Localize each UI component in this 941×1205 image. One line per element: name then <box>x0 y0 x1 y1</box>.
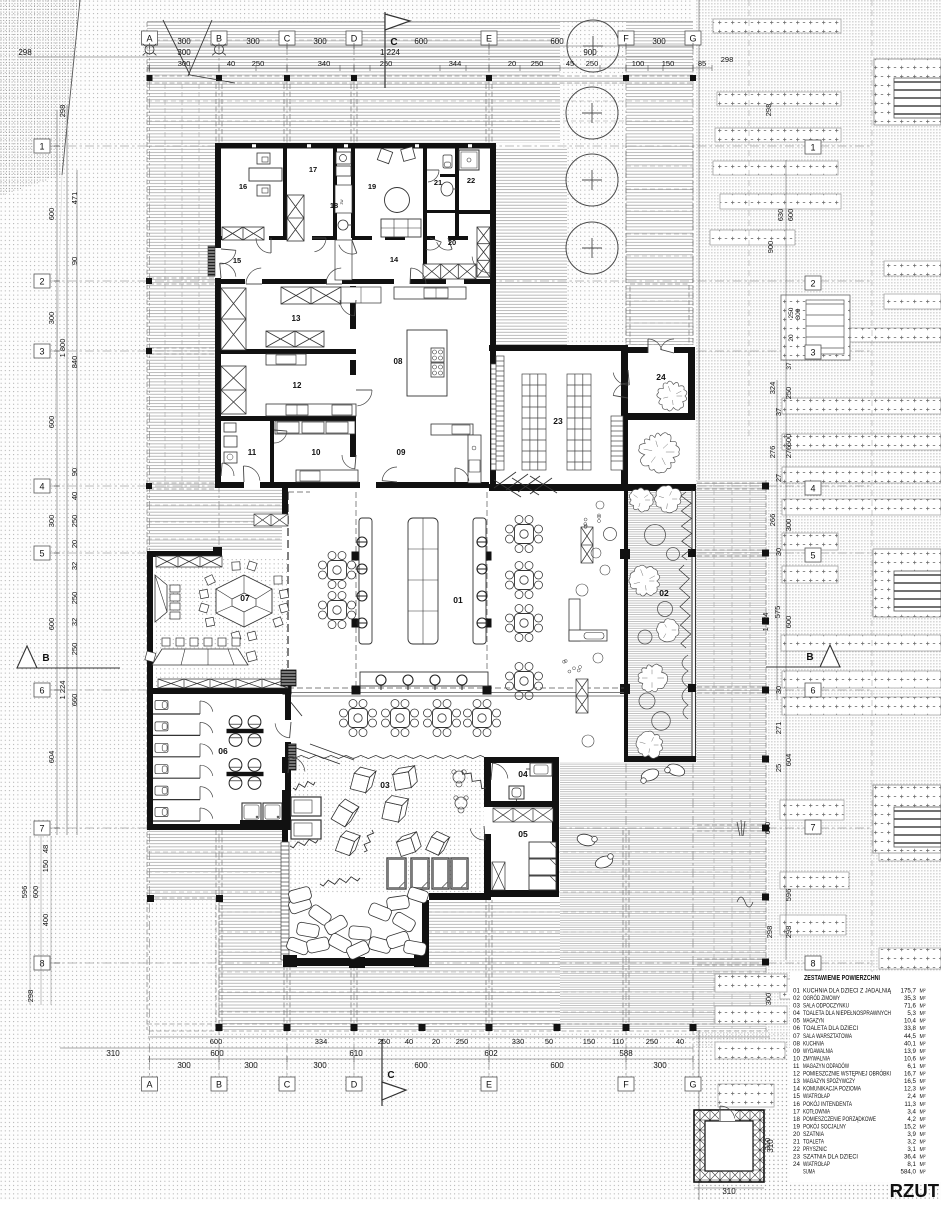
svg-text:M²: M² <box>920 1147 926 1153</box>
svg-text:ZESTAWIENIE POWIERZCHNI: ZESTAWIENIE POWIERZCHNI <box>804 973 880 982</box>
svg-text:06: 06 <box>793 1025 800 1032</box>
svg-text:WIATROŁAP: WIATROŁAP <box>803 1161 830 1168</box>
svg-text:40: 40 <box>676 1037 684 1046</box>
svg-text:09: 09 <box>793 1048 800 1055</box>
svg-text:10,6: 10,6 <box>904 1056 917 1063</box>
svg-text:B: B <box>216 1080 222 1090</box>
svg-text:600: 600 <box>550 1061 564 1070</box>
svg-text:596: 596 <box>20 886 29 899</box>
svg-text:15,2: 15,2 <box>904 1123 917 1130</box>
svg-text:35,3: 35,3 <box>904 995 917 1002</box>
svg-text:19: 19 <box>793 1123 800 1130</box>
svg-text:01: 01 <box>453 595 463 605</box>
svg-text:M²: M² <box>920 1162 926 1168</box>
svg-text:M²: M² <box>920 1026 926 1032</box>
svg-text:KUCHNIA DLA DZIECI Z JADALNIĄ: KUCHNIA DLA DZIECI Z JADALNIĄ <box>803 988 892 995</box>
svg-text:300: 300 <box>47 515 56 528</box>
svg-text:600: 600 <box>550 37 564 46</box>
svg-text:7: 7 <box>39 824 44 834</box>
svg-text:300: 300 <box>652 37 666 46</box>
svg-text:M²: M² <box>920 1041 926 1047</box>
svg-text:18: 18 <box>330 201 338 210</box>
svg-text:D: D <box>351 34 358 44</box>
svg-text:M²: M² <box>920 996 926 1002</box>
svg-text:M²: M² <box>920 1057 926 1063</box>
svg-text:03: 03 <box>793 1003 800 1010</box>
svg-text:M²: M² <box>920 1132 926 1138</box>
svg-text:10,4: 10,4 <box>904 1018 917 1025</box>
svg-text:19: 19 <box>368 182 376 191</box>
svg-text:900: 900 <box>583 48 597 57</box>
svg-text:1 224: 1 224 <box>58 681 67 700</box>
svg-text:300: 300 <box>47 312 56 325</box>
svg-text:11,3: 11,3 <box>904 1101 916 1108</box>
svg-text:3: 3 <box>810 348 815 358</box>
svg-text:SZATNIA: SZATNIA <box>803 1131 825 1138</box>
svg-text:22: 22 <box>793 1146 800 1153</box>
svg-text:300: 300 <box>178 59 191 68</box>
svg-text:KOTŁOWNIA: KOTŁOWNIA <box>803 1108 831 1115</box>
svg-text:250: 250 <box>456 1037 469 1046</box>
svg-text:600: 600 <box>47 208 56 221</box>
svg-text:M²: M² <box>920 1155 926 1161</box>
svg-text:8: 8 <box>39 959 44 969</box>
svg-text:6,1: 6,1 <box>907 1063 916 1070</box>
svg-text:33,8: 33,8 <box>904 1025 917 1032</box>
svg-text:310: 310 <box>766 1139 775 1153</box>
svg-text:ZW: ZW <box>340 200 344 205</box>
svg-text:300: 300 <box>177 37 191 46</box>
svg-text:25: 25 <box>774 764 783 772</box>
svg-text:14: 14 <box>793 1086 800 1093</box>
svg-text:10: 10 <box>312 448 321 457</box>
svg-text:298: 298 <box>764 104 773 117</box>
svg-text:27: 27 <box>774 474 783 482</box>
svg-text:E: E <box>486 1080 492 1090</box>
svg-text:M²: M² <box>920 1102 926 1108</box>
svg-text:18: 18 <box>793 1116 800 1123</box>
svg-text:250: 250 <box>378 1037 391 1046</box>
svg-text:02: 02 <box>793 995 800 1002</box>
svg-text:5: 5 <box>810 551 815 561</box>
svg-text:300: 300 <box>784 519 793 532</box>
svg-text:600: 600 <box>47 416 56 429</box>
svg-text:OGRÓD ZIMOWY: OGRÓD ZIMOWY <box>803 995 840 1002</box>
svg-text:32: 32 <box>70 562 79 570</box>
svg-text:22: 22 <box>467 176 475 185</box>
svg-text:37: 37 <box>774 408 783 416</box>
svg-text:02: 02 <box>659 588 669 598</box>
svg-text:C: C <box>390 37 397 48</box>
svg-text:D: D <box>351 1080 358 1090</box>
svg-text:A: A <box>146 1080 152 1090</box>
svg-text:11: 11 <box>793 1063 800 1070</box>
svg-text:C: C <box>387 1070 394 1081</box>
svg-text:310: 310 <box>106 1049 120 1058</box>
svg-text:298: 298 <box>58 105 67 118</box>
svg-text:20: 20 <box>70 540 79 548</box>
svg-text:KUCHNIA: KUCHNIA <box>803 1040 825 1047</box>
svg-text:SALA ODPOCZYNKU: SALA ODPOCZYNKU <box>803 1003 849 1010</box>
svg-text:B: B <box>42 653 49 664</box>
svg-text:ZMYWALNIA: ZMYWALNIA <box>803 1056 831 1063</box>
svg-text:40,1: 40,1 <box>904 1040 917 1047</box>
svg-text:13: 13 <box>292 314 301 323</box>
svg-text:24: 24 <box>656 372 666 382</box>
svg-text:100: 100 <box>632 59 645 68</box>
svg-text:250: 250 <box>531 59 544 68</box>
svg-text:20: 20 <box>793 1131 800 1138</box>
svg-text:21: 21 <box>434 178 442 187</box>
svg-text:600: 600 <box>786 209 795 222</box>
svg-text:POMIESZCZENIE PORZĄDKOWE: POMIESZCZENIE PORZĄDKOWE <box>803 1116 876 1123</box>
svg-text:17: 17 <box>309 165 317 174</box>
svg-text:SALA WARSZTATOWA: SALA WARSZTATOWA <box>803 1033 853 1040</box>
svg-text:150: 150 <box>583 1037 596 1046</box>
svg-text:300: 300 <box>764 993 773 1006</box>
svg-text:588: 588 <box>619 1049 633 1058</box>
svg-text:596: 596 <box>784 889 793 902</box>
svg-text:4: 4 <box>810 484 815 494</box>
svg-text:6: 6 <box>810 686 815 696</box>
svg-text:M²: M² <box>920 1011 926 1017</box>
svg-text:900: 900 <box>766 241 775 254</box>
svg-text:250: 250 <box>70 643 79 656</box>
svg-text:276: 276 <box>784 446 793 459</box>
svg-text:B: B <box>216 34 222 44</box>
svg-text:M²: M² <box>920 1064 926 1070</box>
svg-text:1 800: 1 800 <box>58 339 67 358</box>
svg-text:23: 23 <box>793 1154 800 1161</box>
svg-text:G: G <box>689 1080 696 1090</box>
svg-text:M²: M² <box>920 1049 926 1055</box>
svg-text:50: 50 <box>545 1037 553 1046</box>
svg-text:WYDAWALNIA: WYDAWALNIA <box>803 1048 834 1055</box>
svg-text:20: 20 <box>448 238 456 247</box>
svg-text:12: 12 <box>793 1071 800 1078</box>
svg-text:400: 400 <box>41 914 50 927</box>
svg-text:M²: M² <box>920 1140 926 1146</box>
svg-text:40: 40 <box>70 492 79 500</box>
svg-text:KOMUNIKACJA POZIOMA: KOMUNIKACJA POZIOMA <box>803 1086 862 1093</box>
svg-text:12,3: 12,3 <box>904 1086 917 1093</box>
svg-text:298: 298 <box>784 926 793 939</box>
svg-text:04: 04 <box>793 1010 800 1017</box>
svg-text:07: 07 <box>793 1033 800 1040</box>
svg-text:575: 575 <box>773 606 782 619</box>
svg-text:71,6: 71,6 <box>904 1003 917 1010</box>
svg-text:09: 09 <box>397 448 406 457</box>
svg-text:600: 600 <box>31 886 40 899</box>
svg-text:RZUT: RZUT <box>890 1180 940 1200</box>
svg-text:16,7: 16,7 <box>904 1071 917 1078</box>
svg-text:1 224: 1 224 <box>380 48 401 57</box>
svg-text:110: 110 <box>612 1037 624 1046</box>
svg-text:310: 310 <box>722 1187 736 1196</box>
svg-text:30: 30 <box>774 548 783 556</box>
svg-text:21: 21 <box>793 1139 800 1146</box>
svg-text:90: 90 <box>70 468 79 476</box>
svg-text:300: 300 <box>177 1061 191 1070</box>
svg-text:2,4: 2,4 <box>907 1093 916 1100</box>
svg-text:250: 250 <box>70 515 79 528</box>
svg-text:06: 06 <box>218 746 228 756</box>
svg-text:10: 10 <box>793 1056 800 1063</box>
svg-text:600: 600 <box>47 618 56 631</box>
svg-text:298: 298 <box>721 55 734 64</box>
svg-text:01: 01 <box>793 988 800 995</box>
svg-text:32: 32 <box>70 618 79 626</box>
svg-text:5: 5 <box>39 549 44 559</box>
svg-text:12: 12 <box>293 381 302 390</box>
svg-text:2: 2 <box>810 279 815 289</box>
svg-text:24: 24 <box>793 1161 800 1168</box>
svg-text:M²: M² <box>920 1072 926 1078</box>
svg-text:20: 20 <box>508 59 516 68</box>
svg-text:600: 600 <box>210 1037 223 1046</box>
svg-text:M²: M² <box>920 989 926 995</box>
svg-text:WIATROŁAP: WIATROŁAP <box>803 1093 830 1100</box>
svg-text:48: 48 <box>41 845 50 853</box>
svg-text:300: 300 <box>244 1061 258 1070</box>
svg-text:M²: M² <box>920 1004 926 1010</box>
svg-text:344: 344 <box>449 59 462 68</box>
svg-text:30: 30 <box>774 686 783 694</box>
svg-text:11: 11 <box>248 448 257 457</box>
svg-text:POMIESZCZNIE WSTĘPNEJ OBRÓBKI: POMIESZCZNIE WSTĘPNEJ OBRÓBKI <box>803 1071 891 1078</box>
svg-text:300: 300 <box>177 48 191 57</box>
svg-text:20: 20 <box>788 334 795 342</box>
svg-text:604: 604 <box>47 751 56 764</box>
svg-text:08: 08 <box>793 1040 800 1047</box>
svg-text:44,5: 44,5 <box>904 1033 917 1040</box>
svg-text:604: 604 <box>784 754 793 767</box>
svg-text:250: 250 <box>646 1037 659 1046</box>
svg-text:TOALETA DLA DZIECI: TOALETA DLA DZIECI <box>803 1025 858 1032</box>
svg-text:90: 90 <box>70 257 79 265</box>
svg-text:07: 07 <box>240 593 250 603</box>
svg-text:MAGAZYN: MAGAZYN <box>803 1018 824 1025</box>
svg-text:M²: M² <box>920 1117 926 1123</box>
svg-text:M²: M² <box>920 1019 926 1025</box>
svg-text:300: 300 <box>795 308 802 319</box>
svg-text:16: 16 <box>793 1101 800 1108</box>
svg-text:85: 85 <box>698 59 706 68</box>
svg-text:266: 266 <box>768 514 777 527</box>
svg-text:08: 08 <box>394 357 403 366</box>
svg-text:471: 471 <box>70 192 79 205</box>
svg-text:300: 300 <box>653 1061 667 1070</box>
svg-text:1: 1 <box>810 143 815 153</box>
svg-text:05: 05 <box>518 829 528 839</box>
svg-text:3,9: 3,9 <box>907 1131 916 1138</box>
svg-text:300: 300 <box>246 37 260 46</box>
svg-text:37: 37 <box>786 362 793 370</box>
svg-text:300: 300 <box>313 1061 327 1070</box>
svg-text:600: 600 <box>210 1049 224 1058</box>
svg-text:630: 630 <box>776 209 785 222</box>
svg-text:16,5: 16,5 <box>904 1078 917 1085</box>
svg-text:250: 250 <box>586 59 599 68</box>
svg-text:40: 40 <box>405 1037 413 1046</box>
svg-text:B: B <box>806 652 813 663</box>
svg-text:M²: M² <box>920 1094 926 1100</box>
svg-text:584,0: 584,0 <box>901 1169 917 1176</box>
svg-text:M²: M² <box>920 1034 926 1040</box>
svg-text:M²: M² <box>920 1087 926 1093</box>
svg-text:M²: M² <box>920 1079 926 1085</box>
svg-text:5,3: 5,3 <box>907 1010 916 1017</box>
svg-text:MAGAZYN ODPADÓW: MAGAZYN ODPADÓW <box>803 1063 849 1070</box>
svg-text:40: 40 <box>227 59 235 68</box>
svg-text:C: C <box>284 34 291 44</box>
svg-text:04: 04 <box>518 769 528 779</box>
svg-text:SZATNIA DLA DZIECI: SZATNIA DLA DZIECI <box>803 1154 858 1161</box>
svg-text:276: 276 <box>768 446 777 459</box>
svg-text:TOALETA DLA NIEPEŁNOSPRAWNYCH: TOALETA DLA NIEPEŁNOSPRAWNYCH <box>803 1010 891 1017</box>
svg-text:13,9: 13,9 <box>904 1048 917 1055</box>
svg-text:7: 7 <box>810 823 815 833</box>
svg-text:340: 340 <box>318 59 331 68</box>
svg-text:A: A <box>146 34 152 44</box>
svg-text:600: 600 <box>414 1061 428 1070</box>
svg-text:8,1: 8,1 <box>907 1161 916 1168</box>
svg-text:POKÓJ INTENDENTA: POKÓJ INTENDENTA <box>803 1101 853 1108</box>
svg-text:3,1: 3,1 <box>907 1146 916 1153</box>
svg-text:8: 8 <box>810 959 815 969</box>
svg-text:MAGAZYN SPOŻYWCZY: MAGAZYN SPOŻYWCZY <box>803 1078 855 1085</box>
svg-text:45: 45 <box>566 59 574 68</box>
svg-text:14: 14 <box>390 255 399 264</box>
svg-text:M²: M² <box>920 1124 926 1130</box>
svg-text:M²: M² <box>920 1109 926 1115</box>
svg-text:03: 03 <box>380 780 390 790</box>
svg-text:3,4: 3,4 <box>907 1108 916 1115</box>
svg-text:2: 2 <box>39 277 44 287</box>
svg-text:175,7: 175,7 <box>901 988 917 995</box>
svg-text:600: 600 <box>784 616 793 629</box>
svg-text:250: 250 <box>784 387 793 400</box>
svg-text:610: 610 <box>349 1049 363 1058</box>
svg-text:3: 3 <box>39 347 44 357</box>
svg-text:271: 271 <box>774 722 783 735</box>
svg-text:15: 15 <box>793 1093 800 1100</box>
svg-text:G: G <box>689 34 696 44</box>
svg-text:150: 150 <box>41 860 50 873</box>
svg-text:250: 250 <box>788 307 795 318</box>
svg-text:150: 150 <box>662 59 675 68</box>
svg-text:600: 600 <box>763 822 772 835</box>
svg-text:250: 250 <box>252 59 265 68</box>
svg-text:36,4: 36,4 <box>904 1154 917 1161</box>
svg-text:C: C <box>284 1080 291 1090</box>
svg-text:334: 334 <box>315 1037 328 1046</box>
svg-text:15: 15 <box>233 256 241 265</box>
svg-text:602: 602 <box>484 1049 498 1058</box>
svg-text:250: 250 <box>70 592 79 605</box>
svg-text:E: E <box>486 34 492 44</box>
svg-text:4,2: 4,2 <box>907 1116 916 1123</box>
svg-text:6: 6 <box>39 686 44 696</box>
svg-text:POKÓJ SOCJALNY: POKÓJ SOCJALNY <box>803 1123 846 1130</box>
svg-text:SUMA: SUMA <box>803 1169 816 1176</box>
svg-text:4: 4 <box>39 482 44 492</box>
svg-text:05: 05 <box>793 1018 800 1025</box>
svg-text:F: F <box>623 34 629 44</box>
svg-text:1: 1 <box>39 142 44 152</box>
svg-text:660: 660 <box>70 694 79 707</box>
svg-text:TOALETA: TOALETA <box>803 1139 825 1146</box>
svg-text:298: 298 <box>765 926 774 939</box>
svg-text:600: 600 <box>784 434 793 447</box>
svg-text:324: 324 <box>768 382 777 395</box>
svg-text:300: 300 <box>313 37 327 46</box>
svg-text:298: 298 <box>18 48 32 57</box>
svg-text:20: 20 <box>432 1037 440 1046</box>
svg-text:17: 17 <box>793 1108 800 1115</box>
svg-text:PRYSZNIC: PRYSZNIC <box>803 1146 827 1153</box>
svg-text:3,2: 3,2 <box>907 1139 916 1146</box>
svg-text:23: 23 <box>553 416 563 426</box>
svg-text:1 224: 1 224 <box>761 613 770 632</box>
svg-text:16: 16 <box>239 182 247 191</box>
svg-text:F: F <box>623 1080 629 1090</box>
svg-text:250: 250 <box>380 59 393 68</box>
svg-text:600: 600 <box>414 37 428 46</box>
svg-text:M²: M² <box>920 1170 926 1176</box>
svg-text:13: 13 <box>793 1078 800 1085</box>
svg-text:298: 298 <box>26 990 35 1003</box>
svg-text:330: 330 <box>512 1037 525 1046</box>
svg-text:840: 840 <box>70 356 79 369</box>
